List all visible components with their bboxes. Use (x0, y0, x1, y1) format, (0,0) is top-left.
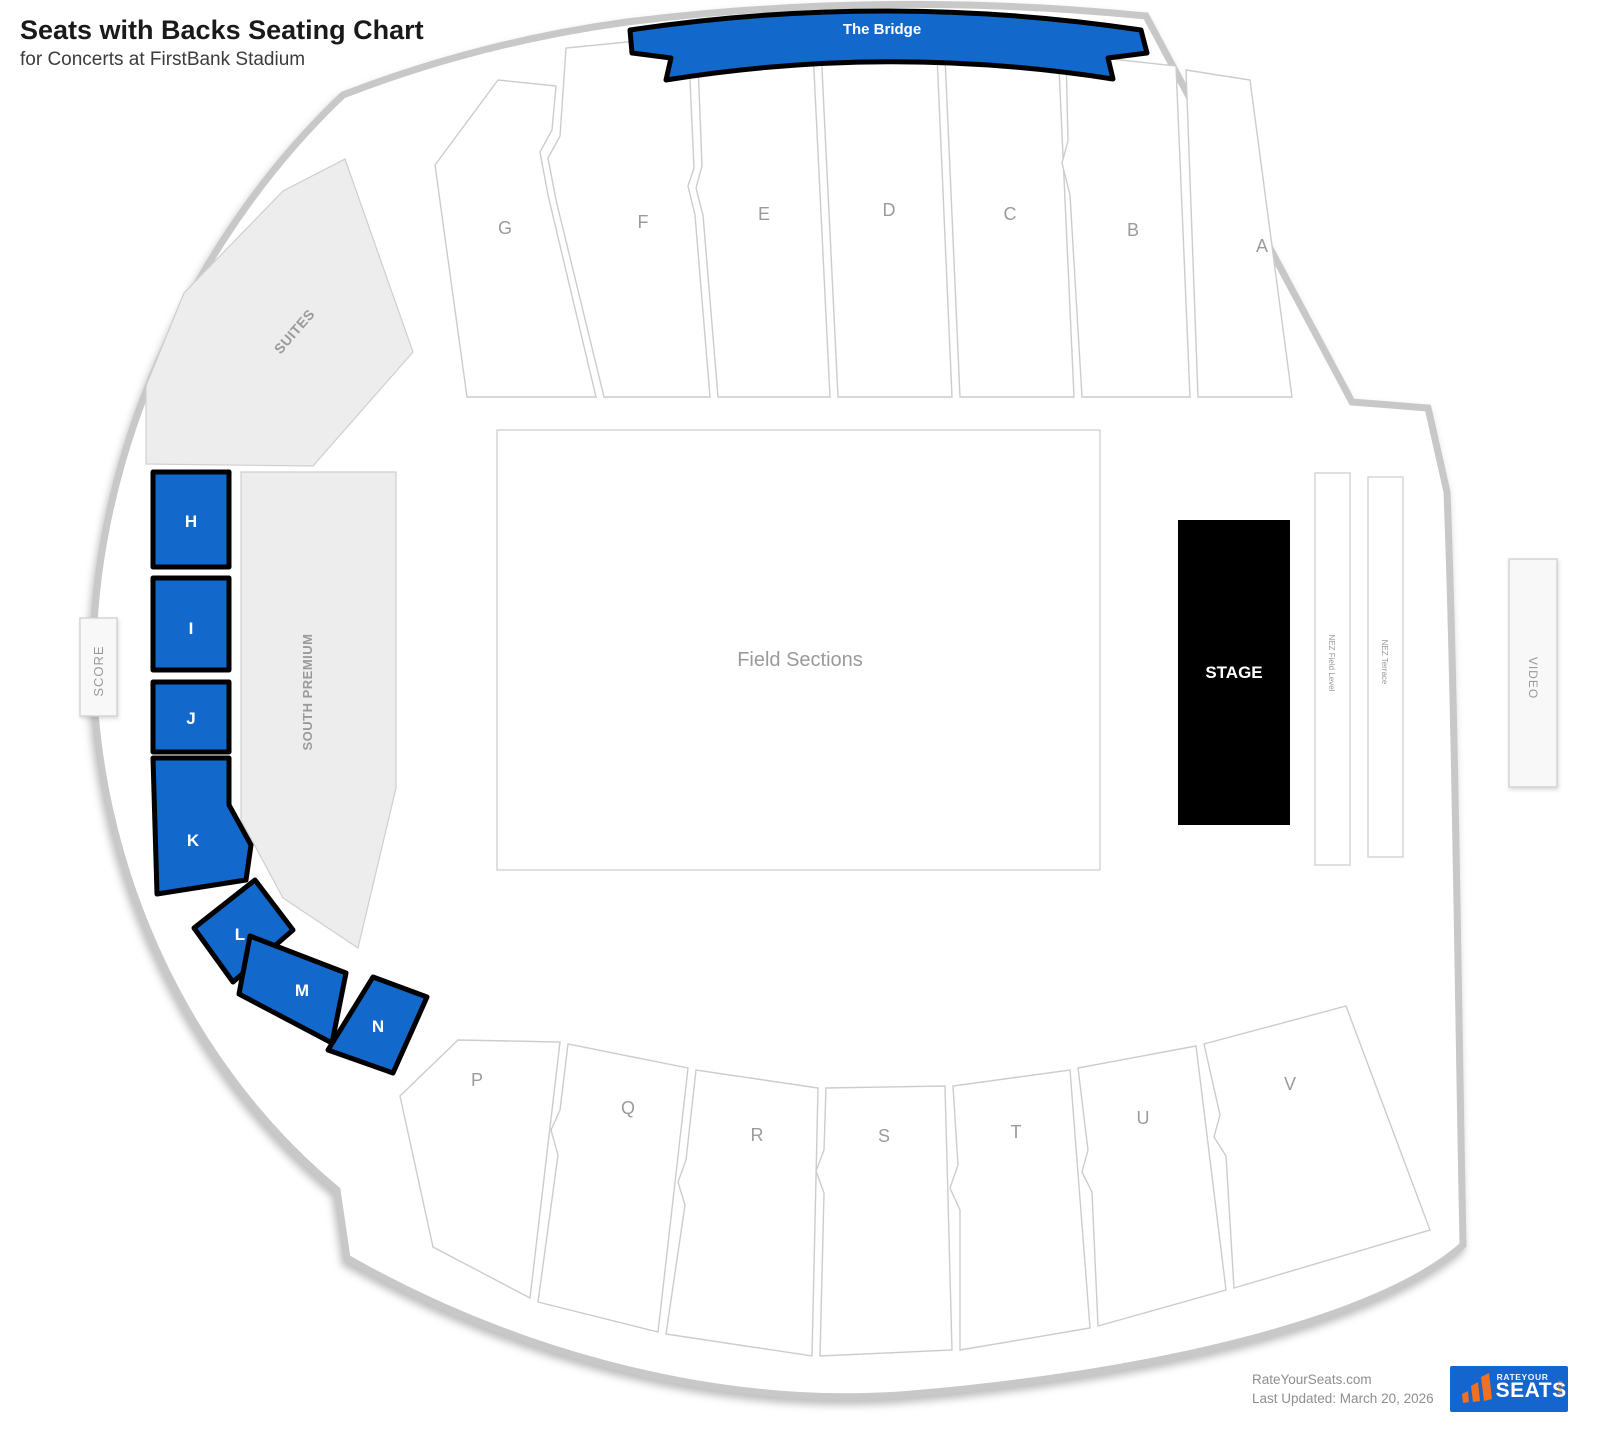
section-c-label: C (1004, 204, 1017, 224)
section-h-label: H (185, 512, 197, 531)
section-a[interactable] (1186, 70, 1292, 397)
section-b-label: B (1127, 220, 1139, 240)
stage-label: STAGE (1205, 663, 1262, 682)
video-label: VIDEO (1526, 657, 1540, 699)
score-label: SCORE (91, 645, 106, 696)
section-f-label: F (638, 212, 649, 232)
footer-last-updated: Last Updated: March 20, 2026 (1252, 1389, 1434, 1408)
section-l-label: L (235, 925, 245, 944)
section-t-label: T (1011, 1122, 1022, 1142)
section-k-label: K (187, 831, 200, 850)
section-e-label: E (758, 204, 770, 224)
section-i-label: I (189, 619, 194, 638)
footer-site: RateYourSeats.com (1252, 1370, 1434, 1389)
section-m-label: M (295, 981, 309, 1000)
logo-bars-icon (1458, 1371, 1494, 1407)
page-title: Seats with Backs Seating Chart (20, 14, 424, 46)
section-q-label: Q (621, 1098, 635, 1118)
section-a-label: A (1256, 236, 1268, 256)
section-u-label: U (1137, 1108, 1150, 1128)
section-g-label: G (498, 218, 512, 238)
nez-field-level-label: NEZ Field Level (1327, 635, 1336, 692)
footer: RateYourSeats.com Last Updated: March 20… (1252, 1366, 1568, 1412)
section-n-label: N (372, 1017, 384, 1036)
seating-chart-svg: The Bridge G F E D C B A P Q R S T U V H… (0, 0, 1600, 1427)
nez-terrace-label: NEZ Terrace (1380, 640, 1389, 685)
section-p-label: P (471, 1070, 483, 1090)
bridge-label: The Bridge (843, 21, 921, 38)
section-d-label: D (883, 200, 896, 220)
south-premium-label: SOUTH PREMIUM (300, 634, 315, 751)
section-v-label: V (1284, 1074, 1296, 1094)
section-s-label: S (878, 1126, 890, 1146)
chart-title-block: Seats with Backs Seating Chart for Conce… (20, 14, 424, 72)
field-sections-label: Field Sections (737, 649, 863, 671)
rateyourseats-logo[interactable]: RATEYOUR SEATS .COM (1450, 1366, 1568, 1412)
section-j-label: J (186, 709, 195, 728)
section-t[interactable] (950, 1070, 1090, 1350)
page-subtitle: for Concerts at FirstBank Stadium (20, 48, 424, 72)
logo-com-text: .COM (1556, 1379, 1562, 1395)
section-r-label: R (751, 1125, 764, 1145)
